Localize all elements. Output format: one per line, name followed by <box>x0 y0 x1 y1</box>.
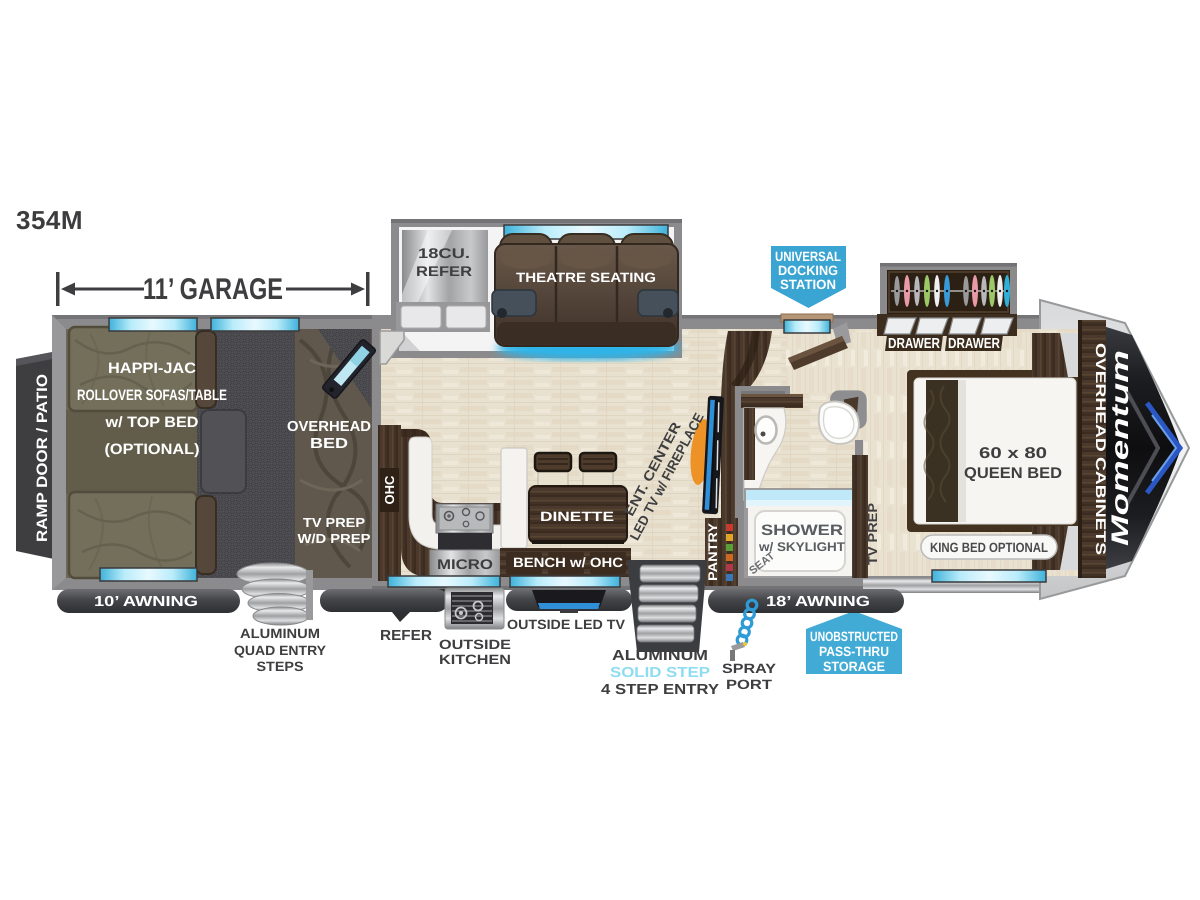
svg-text:QUAD ENTRY: QUAD ENTRY <box>234 643 326 658</box>
svg-text:60 x 80: 60 x 80 <box>979 445 1047 462</box>
svg-text:ALUMINUM: ALUMINUM <box>240 626 320 641</box>
svg-text:REFER: REFER <box>380 628 433 644</box>
svg-text:DRAWER: DRAWER <box>948 336 1000 352</box>
svg-text:SOLID STEP: SOLID STEP <box>610 665 710 681</box>
svg-text:HAPPI-JAC: HAPPI-JAC <box>108 360 196 377</box>
svg-text:MICRO: MICRO <box>437 556 493 572</box>
svg-text:18CU.: 18CU. <box>418 245 470 261</box>
svg-text:RAMP DOOR / PATIO: RAMP DOOR / PATIO <box>34 374 51 542</box>
svg-text:TV PREP: TV PREP <box>865 503 880 565</box>
svg-text:ALUMINUM: ALUMINUM <box>612 648 708 664</box>
svg-text:THEATRE SEATING: THEATRE SEATING <box>516 270 656 285</box>
svg-text:STEPS: STEPS <box>257 659 304 674</box>
svg-text:DINETTE: DINETTE <box>540 509 614 524</box>
svg-text:W/D PREP: W/D PREP <box>298 531 371 546</box>
svg-text:DOCKING: DOCKING <box>778 263 838 278</box>
svg-text:SHOWER: SHOWER <box>761 522 843 539</box>
svg-text:STATION: STATION <box>780 277 836 292</box>
svg-text:STORAGE: STORAGE <box>823 659 885 674</box>
svg-text:OUTSIDE: OUTSIDE <box>439 637 511 652</box>
svg-text:TV PREP: TV PREP <box>303 515 365 530</box>
svg-text:OUTSIDE LED TV: OUTSIDE LED TV <box>507 617 625 632</box>
svg-text:OVERHEAD CABINETS: OVERHEAD CABINETS <box>1093 343 1109 555</box>
svg-text:QUEEN BED: QUEEN BED <box>964 465 1062 482</box>
svg-text:(OPTIONAL): (OPTIONAL) <box>105 441 200 458</box>
svg-text:PORT: PORT <box>726 677 773 692</box>
svg-text:REFER: REFER <box>416 263 472 279</box>
svg-text:SPRAY: SPRAY <box>722 661 776 676</box>
svg-text:OHC: OHC <box>382 475 397 505</box>
svg-text:UNOBSTRUCTED: UNOBSTRUCTED <box>810 629 898 644</box>
svg-text:18’ AWNING: 18’ AWNING <box>766 594 870 610</box>
svg-text:11’ GARAGE: 11’ GARAGE <box>143 273 283 306</box>
svg-text:4 STEP ENTRY: 4 STEP ENTRY <box>601 682 719 698</box>
svg-text:Momentum: Momentum <box>1107 350 1134 546</box>
svg-text:BENCH w/ OHC: BENCH w/ OHC <box>513 555 623 570</box>
svg-text:354M: 354M <box>16 205 83 235</box>
svg-text:10’ AWNING: 10’ AWNING <box>94 594 198 610</box>
svg-text:KITCHEN: KITCHEN <box>439 652 511 667</box>
svg-text:UNIVERSAL: UNIVERSAL <box>775 249 841 264</box>
svg-text:PANTRY: PANTRY <box>706 522 720 581</box>
svg-text:BED: BED <box>310 436 348 452</box>
svg-text:DRAWER: DRAWER <box>888 336 940 352</box>
svg-text:KING BED OPTIONAL: KING BED OPTIONAL <box>930 540 1048 555</box>
svg-text:w/ TOP BED: w/ TOP BED <box>104 414 198 431</box>
svg-text:PASS-THRU: PASS-THRU <box>819 644 889 659</box>
svg-text:OVERHEAD: OVERHEAD <box>287 419 371 435</box>
svg-text:ROLLOVER SOFAS/TABLE: ROLLOVER SOFAS/TABLE <box>77 387 227 404</box>
